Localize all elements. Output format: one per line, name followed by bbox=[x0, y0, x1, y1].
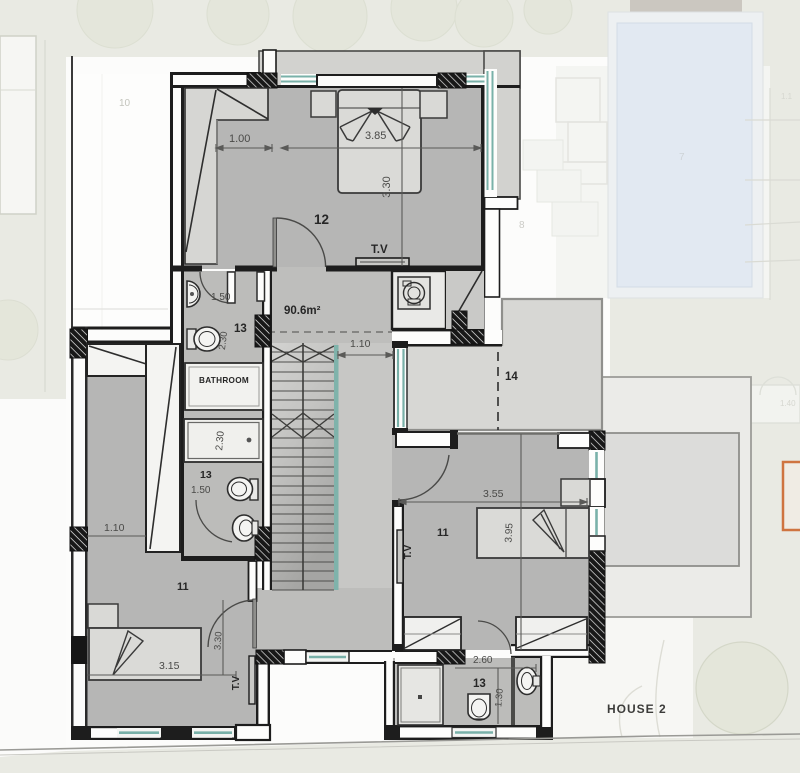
svg-text:13: 13 bbox=[234, 323, 247, 335]
svg-text:1.10: 1.10 bbox=[104, 522, 125, 534]
svg-text:2.30: 2.30 bbox=[217, 331, 230, 351]
svg-text:1.30: 1.30 bbox=[493, 688, 506, 707]
svg-text:13: 13 bbox=[473, 678, 486, 690]
svg-text:3.30: 3.30 bbox=[212, 631, 224, 650]
svg-text:8: 8 bbox=[519, 220, 525, 231]
svg-text:90.6m²: 90.6m² bbox=[284, 305, 321, 317]
svg-text:HOUSE 2: HOUSE 2 bbox=[607, 702, 667, 716]
svg-text:T.V: T.V bbox=[231, 675, 242, 690]
svg-text:2.60: 2.60 bbox=[473, 655, 493, 666]
svg-text:3.55: 3.55 bbox=[483, 488, 504, 500]
svg-text:3.15: 3.15 bbox=[159, 660, 180, 672]
svg-text:BATHROOM: BATHROOM bbox=[199, 376, 249, 385]
svg-text:1.00: 1.00 bbox=[229, 133, 250, 145]
svg-text:T.V: T.V bbox=[403, 544, 414, 559]
svg-text:1.50: 1.50 bbox=[191, 485, 211, 496]
svg-text:1.1: 1.1 bbox=[781, 92, 793, 101]
svg-text:1.40: 1.40 bbox=[780, 399, 796, 408]
svg-text:T.V: T.V bbox=[371, 244, 388, 256]
svg-text:3.85: 3.85 bbox=[365, 130, 386, 142]
svg-text:3.95: 3.95 bbox=[504, 522, 516, 542]
svg-text:2.30: 2.30 bbox=[214, 430, 227, 451]
svg-text:7: 7 bbox=[679, 152, 685, 163]
svg-text:1.10: 1.10 bbox=[350, 338, 371, 350]
svg-text:3.30: 3.30 bbox=[381, 176, 393, 197]
svg-text:1.50: 1.50 bbox=[211, 292, 231, 303]
svg-text:12: 12 bbox=[314, 212, 329, 227]
svg-text:11: 11 bbox=[437, 527, 449, 539]
svg-text:14: 14 bbox=[505, 371, 518, 383]
svg-text:10: 10 bbox=[119, 98, 131, 109]
svg-text:11: 11 bbox=[177, 581, 189, 593]
svg-text:13: 13 bbox=[200, 469, 212, 481]
